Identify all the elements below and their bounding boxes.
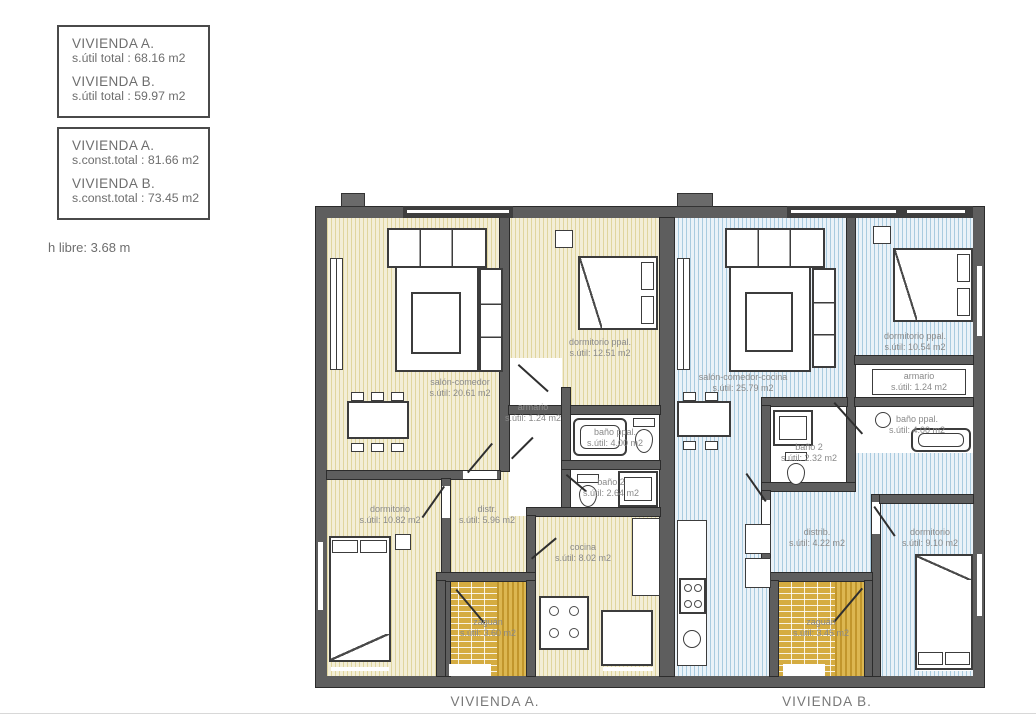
caption-vivienda-b: VIVIENDA B. — [747, 694, 907, 709]
vivienda-a-title: VIVIENDA A. — [72, 36, 202, 51]
pillow — [957, 288, 970, 316]
caption-vivienda-a: VIVIENDA A. — [415, 694, 575, 709]
wall-b-dormppal-south — [855, 356, 973, 364]
wall-b-dormitorio-north — [880, 495, 973, 503]
floor-plan: salón-comedor s.útil: 20.61 m2 dormitori… — [315, 206, 985, 688]
pillow — [641, 262, 654, 290]
burner — [694, 584, 702, 592]
sofa-b — [725, 228, 825, 268]
wall-a-zaguan-north — [437, 573, 535, 581]
armario-floor-b — [855, 364, 973, 398]
appliance-b — [745, 524, 771, 554]
wall-a-banos-divider — [562, 461, 660, 469]
kitchen-sink-b — [683, 630, 701, 648]
wall-a-zaguan-east — [527, 581, 535, 676]
bathtub-inner-a — [580, 425, 620, 449]
wall-a-dormppal-south — [509, 406, 660, 414]
chaise-a — [479, 268, 503, 372]
window-bottom-a — [331, 667, 389, 671]
burner — [549, 628, 559, 638]
zaguan-brick-b — [778, 581, 835, 676]
wall-a-cocina-west — [527, 516, 535, 581]
dining-table-b — [677, 401, 731, 437]
vivienda-a-title: VIVIENDA A. — [72, 138, 202, 153]
chair — [391, 443, 404, 452]
wall-a-cocina-north — [527, 508, 660, 516]
chair — [391, 392, 404, 401]
wall-stub-center — [677, 193, 713, 207]
bed-fold — [580, 258, 602, 328]
vivienda-b-title: VIVIENDA B. — [72, 74, 202, 89]
pillow — [360, 540, 387, 553]
bottom-divider-line — [0, 713, 1036, 714]
pillow — [957, 254, 970, 282]
chair — [371, 392, 384, 401]
burner — [684, 600, 692, 608]
wardrobe-b — [677, 258, 690, 370]
wall-b-zaguan-west — [770, 581, 778, 676]
burner — [684, 584, 692, 592]
nightstand-b — [873, 226, 891, 244]
wall-b-armario-south — [855, 398, 973, 406]
wall-b-banos-south — [762, 483, 855, 491]
shower-inner-b — [779, 416, 807, 440]
coffee-table-b — [745, 292, 793, 352]
window-left-dormitorio-a — [318, 542, 323, 610]
chair — [351, 392, 364, 401]
nightstand-a2 — [395, 534, 411, 550]
toilet-tank-a — [633, 418, 655, 427]
entrance-opening-b — [783, 664, 825, 676]
bed-fold — [917, 556, 971, 580]
window-right-dormitorio-b — [977, 554, 982, 616]
bathtub-inner-b — [918, 433, 964, 447]
zaguan-brick-a — [445, 581, 497, 676]
vivienda-a-useful-area: s.útil total : 68.16 m2 — [72, 51, 202, 65]
built-area-box: VIVIENDA A. s.const.total : 81.66 m2 VIV… — [57, 127, 210, 220]
shower-inner-a — [624, 477, 652, 501]
wall-b-zaguan-east — [865, 581, 872, 676]
kitchen-table-a — [601, 610, 653, 666]
wall-b-bano2-west — [762, 406, 770, 491]
burner — [569, 628, 579, 638]
stove-b — [679, 578, 706, 614]
dining-table-a — [347, 401, 409, 439]
pillow — [332, 540, 358, 553]
chair — [683, 392, 696, 401]
zaguan-stripe-a — [497, 581, 527, 676]
burner — [694, 600, 702, 608]
window-right-dormppal-b — [977, 266, 982, 336]
sink-b — [875, 412, 891, 428]
chaise-b — [812, 268, 836, 368]
pillow — [641, 296, 654, 324]
toilet-tank-a2 — [577, 474, 599, 483]
vivienda-b-title: VIVIENDA B. — [72, 176, 202, 191]
chair — [705, 392, 718, 401]
window-top-b2 — [907, 210, 965, 213]
chair — [683, 441, 696, 450]
wall-a-zaguan-west — [437, 581, 445, 676]
window-bottom-cocina-a — [603, 667, 653, 671]
bed-fold — [895, 250, 917, 320]
free-height-note: h libre: 3.68 m — [48, 240, 130, 255]
stove-a — [539, 596, 589, 650]
pillow — [918, 652, 943, 665]
vivienda-b-useful-area: s.útil total : 59.97 m2 — [72, 89, 202, 103]
burner — [549, 606, 559, 616]
entrance-opening-a — [449, 664, 491, 676]
wall-a-banos-west — [562, 388, 570, 516]
wall-b-zaguan-north — [770, 573, 872, 581]
window-top-b — [791, 210, 896, 213]
pillow — [945, 652, 970, 665]
window-top-a — [407, 210, 509, 213]
vivienda-a-built-area: s.const.total : 81.66 m2 — [72, 153, 202, 167]
appliance-b2 — [745, 558, 771, 588]
wall-stub-left — [341, 193, 365, 207]
wardrobe-a — [330, 258, 343, 370]
chair — [705, 441, 718, 450]
kitchen-counter-a — [632, 518, 660, 596]
coffee-table-a — [411, 292, 461, 354]
sofa-a — [387, 228, 487, 268]
wall-b-salon-east — [847, 218, 855, 491]
door-opening-a-dormitorio — [442, 486, 450, 518]
toilet-tank-b2 — [785, 452, 807, 461]
zaguan-stripe-b — [835, 581, 865, 676]
vivienda-b-built-area: s.const.total : 73.45 m2 — [72, 191, 202, 205]
chair — [351, 443, 364, 452]
party-wall — [660, 218, 674, 676]
chair — [371, 443, 384, 452]
useful-area-box: VIVIENDA A. s.útil total : 68.16 m2 VIVI… — [57, 25, 210, 118]
burner — [569, 606, 579, 616]
bed-fold — [331, 634, 389, 660]
floorplan-page: { "info": { "box_util": { "a_title": "VI… — [0, 0, 1036, 719]
nightstand-a — [555, 230, 573, 248]
